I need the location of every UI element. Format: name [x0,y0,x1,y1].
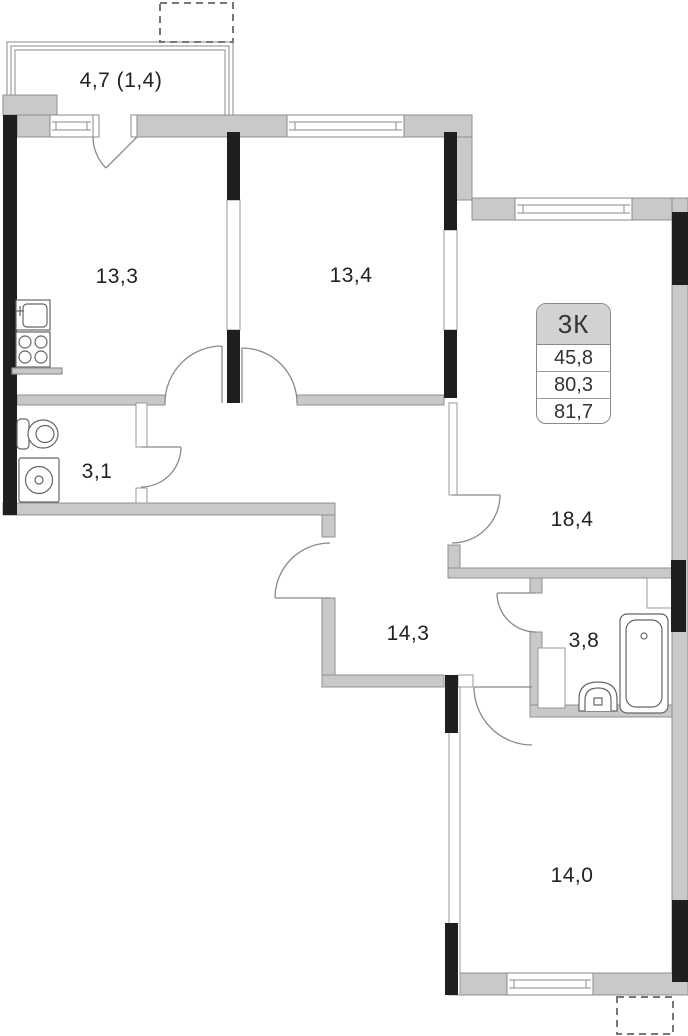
door-balcony [93,137,137,168]
wall-wc-right-top [136,403,147,447]
windows [50,115,632,995]
load-bearing-walls [3,115,688,995]
wall-hallway-bottom [322,675,444,687]
door-bedroom-1 [242,348,297,403]
wall-wc-right-stub [136,488,147,503]
wall-bed2-black-top [445,675,458,733]
room-label-bathroom: 3,8 [569,629,600,653]
dashed-box-bottom [617,997,673,1034]
room-label-wc-small: 3,1 [82,460,113,484]
wall-entry-b [322,598,335,675]
floor-plan: 4,7 (1,4) 13,3 13,4 3,1 18,4 14,3 3,8 14… [0,0,688,1036]
room-label-balcony: 4,7 (1,4) [80,69,163,93]
wall-bed1-living-thin [444,230,457,330]
wall-left-bottom [3,503,335,515]
door-jamb-bed2 [458,675,473,687]
wall-right-black-1 [672,212,688,285]
wall-a-black-top [227,132,240,200]
wall-kitchen-bed1-thin [227,200,240,330]
wall-hall-top-b [297,395,444,405]
room-label-living: 18,4 [551,508,594,532]
window-kitchen [50,115,93,137]
walls [3,95,688,995]
wall-right-black-2 [671,560,686,632]
area-total: 80,3 [537,372,610,399]
wall-right-black-3 [672,900,688,982]
bath-cabinet [538,648,565,708]
wall-b-black-mid [444,330,457,398]
door-entrance [275,543,330,598]
wall-living-bottom [448,568,672,578]
wall-entry-a [322,515,335,537]
wall-left-black [3,115,17,515]
wall-top-right-b [632,198,672,220]
window-bedroom-1 [287,115,404,137]
bath-duct [647,578,672,608]
wall-b-black-top [444,132,457,230]
room-label-hallway: 14,3 [387,622,430,646]
room-label-kitchen: 13,3 [96,265,139,289]
bathroom-sink-icon [579,682,617,711]
balcony-door-jamb-left [93,115,99,137]
apartment-type-label: 3К [537,304,610,345]
wall-top-right-a [472,198,515,220]
door-wc-small [141,447,181,487]
wall-balcony-base [3,95,57,115]
apartment-info-box: 3К 45,8 80,3 81,7 [536,303,611,424]
bathtub-icon [620,614,668,713]
balcony-door-jamb-right [131,115,137,137]
area-living: 45,8 [537,345,610,372]
kitchen-sink-icon [16,300,50,330]
stove-icon [12,332,62,374]
doors [93,137,536,745]
wall-hall-living-thin [449,403,457,495]
door-living-room [452,495,500,543]
wall-top-left [17,115,50,137]
wall-bath-stub [530,578,542,593]
door-bedroom-2 [474,687,532,745]
door-bathroom [497,593,536,632]
door-kitchen [165,346,222,403]
wall-bottom-a [458,973,507,995]
toilet-icon [17,419,58,449]
window-living-room [515,198,632,220]
room-label-bedroom-1: 13,4 [330,264,373,288]
wall-bed2-black-bottom [445,923,458,995]
washing-machine-icon [19,458,59,502]
window-bedroom-2 [507,973,593,995]
room-label-bedroom-2: 14,0 [551,864,594,888]
wall-a-black-bottom [227,330,240,403]
dashed-box-top [160,3,233,42]
area-total-with-balcony: 81,7 [537,399,610,424]
